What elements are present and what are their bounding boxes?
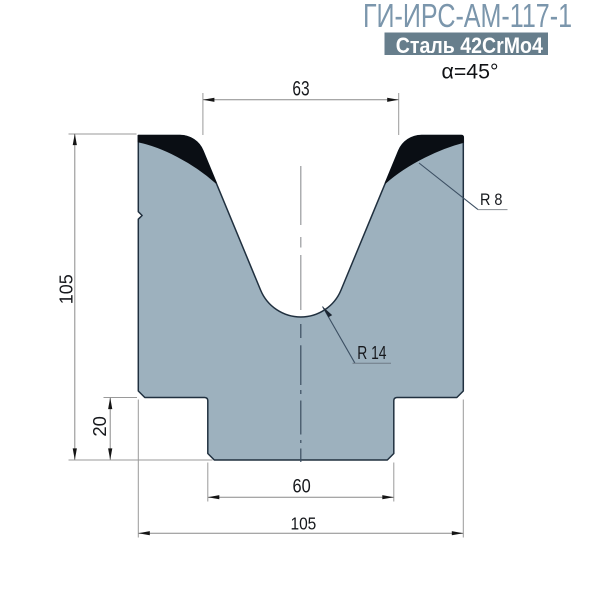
svg-text:105: 105	[290, 513, 316, 533]
svg-text:ГИ-ИРС-АМ-117-1: ГИ-ИРС-АМ-117-1	[363, 0, 572, 35]
svg-text:20: 20	[89, 416, 110, 437]
svg-text:60: 60	[292, 475, 310, 497]
svg-text:Сталь 42CrMo4: Сталь 42CrMo4	[396, 34, 543, 59]
svg-text:α=45°: α=45°	[442, 60, 499, 84]
svg-text:105: 105	[56, 274, 76, 304]
svg-text:63: 63	[292, 76, 309, 100]
svg-text:R 8: R 8	[480, 191, 503, 209]
svg-text:R 14: R 14	[357, 343, 386, 363]
